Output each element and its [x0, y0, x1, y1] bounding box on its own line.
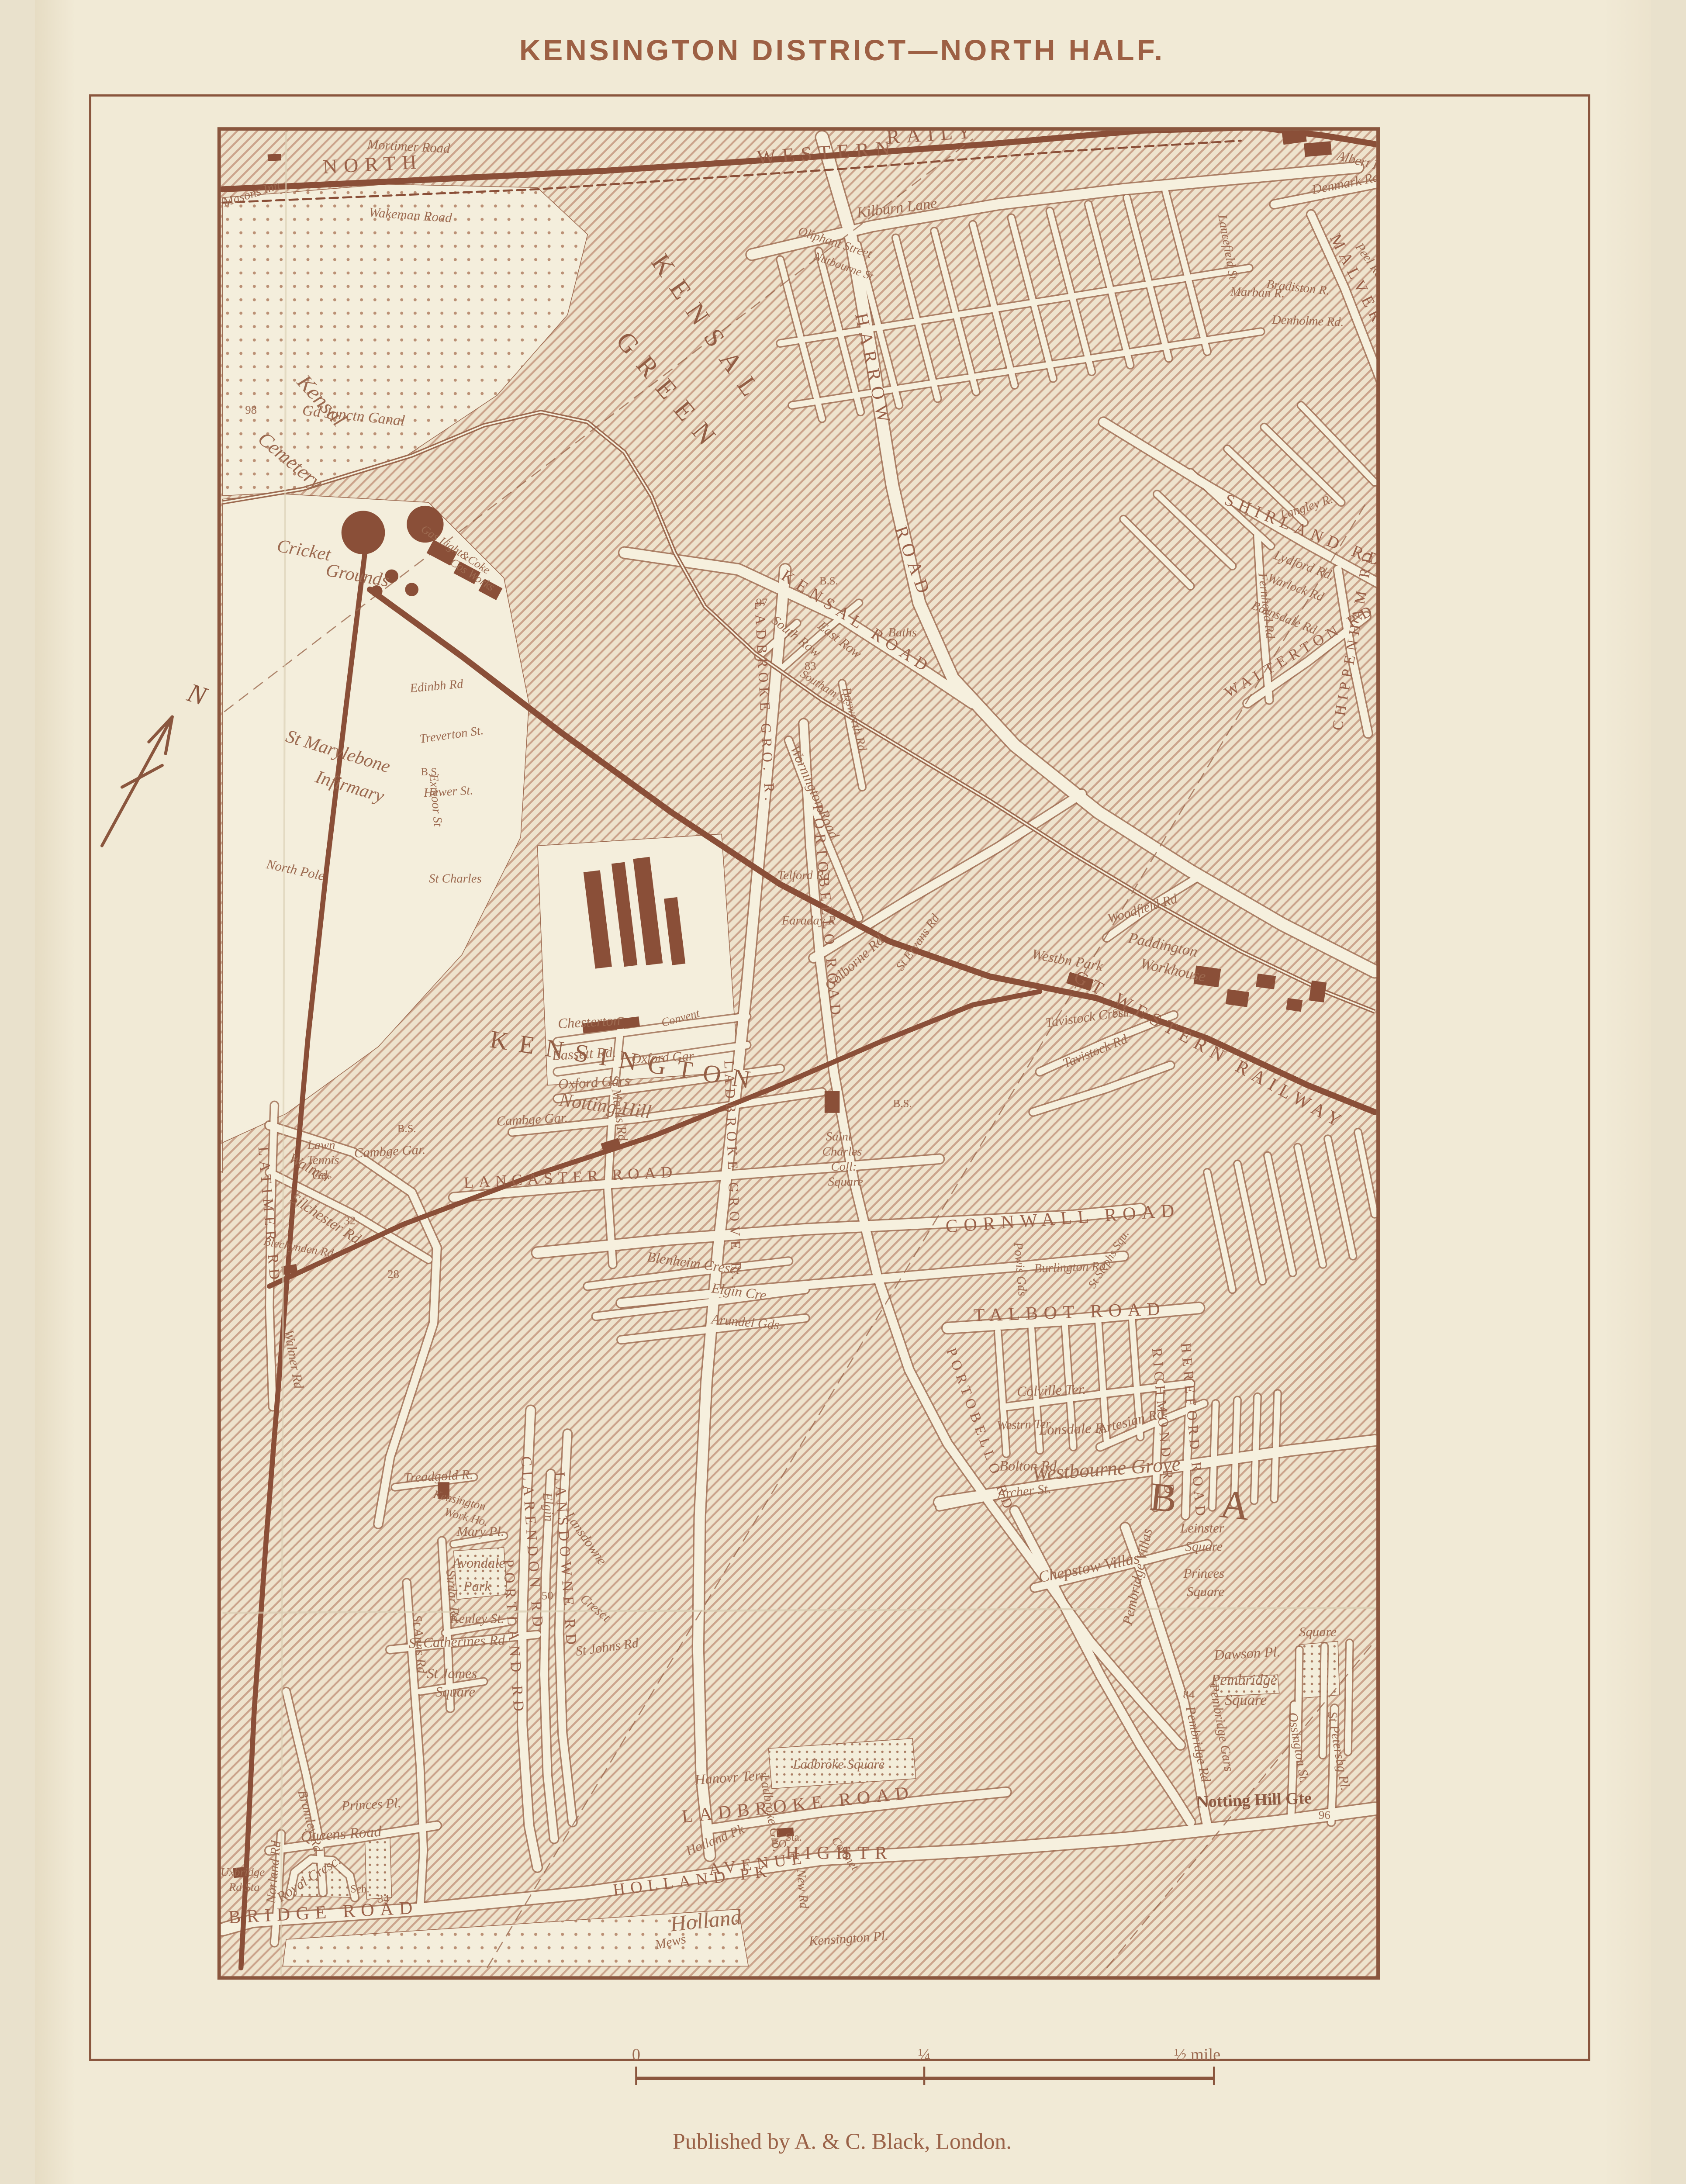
svg-text:Elgin: Elgin	[540, 1492, 557, 1522]
svg-text:97: 97	[756, 596, 768, 609]
svg-text:84: 84	[1183, 1688, 1195, 1701]
svg-text:Marban R.: Marban R.	[1230, 284, 1285, 300]
svg-text:B.S.: B.S.	[421, 766, 439, 778]
svg-text:Westrn Ter.: Westrn Ter.	[997, 1417, 1053, 1432]
svg-text:Square: Square	[1187, 1584, 1224, 1599]
svg-text:32: 32	[344, 1214, 356, 1227]
svg-text:St James: St James	[427, 1666, 477, 1682]
svg-text:Charles: Charles	[822, 1145, 862, 1159]
map-content: NORTHWESTERNRAILYKENSALGREENKensalCemete…	[190, 120, 1416, 1976]
svg-text:Bolton Rd: Bolton Rd	[999, 1458, 1057, 1474]
svg-text:28: 28	[387, 1267, 399, 1280]
svg-text:0: 0	[632, 2046, 640, 2064]
svg-text:Square: Square	[828, 1175, 864, 1189]
svg-text:Bassett Rd.: Bassett Rd.	[552, 1044, 616, 1064]
map-sheet: KENSINGTON DISTRICT—NORTH HALF. NORTHWES…	[35, 0, 1651, 2184]
svg-text:Square: Square	[435, 1684, 475, 1700]
svg-text:Square: Square	[1185, 1539, 1223, 1554]
svg-text:Denholme Rd.: Denholme Rd.	[1271, 313, 1344, 329]
svg-text:Uxbridge: Uxbridge	[221, 1865, 265, 1878]
svg-text:Square: Square	[1299, 1624, 1337, 1639]
svg-text:¼: ¼	[918, 2046, 931, 2064]
svg-text:Chesterton: Chesterton	[557, 1013, 621, 1032]
svg-text:B.S.: B.S.	[819, 575, 838, 587]
svg-text:½ mile: ½ mile	[1174, 2046, 1220, 2064]
svg-text:Rd Sta: Rd Sta	[228, 1880, 260, 1894]
svg-text:B.S.: B.S.	[397, 1123, 416, 1135]
compass-n-label: N	[183, 677, 211, 712]
svg-text:Princes: Princes	[1183, 1566, 1224, 1581]
svg-text:Tennis: Tennis	[307, 1153, 339, 1167]
svg-text:83: 83	[805, 660, 816, 673]
svg-text:Avondale: Avondale	[451, 1555, 505, 1571]
map-svg: KENSINGTON DISTRICT—NORTH HALF. NORTHWES…	[35, 0, 1651, 2184]
svg-text:Square: Square	[1225, 1692, 1267, 1708]
svg-text:50: 50	[542, 1589, 553, 1602]
svg-text:Coll:: Coll:	[831, 1160, 857, 1174]
svg-text:Baths: Baths	[888, 625, 917, 639]
svg-text:Sch.: Sch.	[1112, 1007, 1132, 1019]
compass-north-arrow: N	[102, 677, 211, 846]
page-title: KENSINGTON DISTRICT—NORTH HALF.	[519, 34, 1165, 67]
svg-text:Colville Ter.: Colville Ter.	[1016, 1382, 1086, 1400]
svg-text:Lawn: Lawn	[307, 1138, 335, 1152]
svg-text:96: 96	[1319, 1808, 1330, 1821]
svg-text:Park: Park	[463, 1579, 491, 1594]
svg-text:Saint: Saint	[826, 1130, 852, 1144]
svg-text:Princes Pl.: Princes Pl.	[341, 1795, 401, 1813]
svg-text:Gd.: Gd.	[312, 1168, 330, 1182]
svg-text:Sch.: Sch.	[350, 1883, 370, 1895]
svg-text:St Charles: St Charles	[429, 872, 482, 886]
svg-text:Ladbroke Square: Ladbroke Square	[793, 1757, 885, 1772]
svg-text:34: 34	[377, 1892, 389, 1905]
svg-text:B.S.: B.S.	[893, 1098, 912, 1109]
svg-text:98: 98	[245, 403, 257, 416]
svg-text:Burlington Rd.: Burlington Rd.	[1034, 1259, 1109, 1275]
publisher-credit: Published by A. & C. Black, London.	[673, 2129, 1012, 2154]
svg-text:Sta.: Sta.	[785, 1832, 802, 1843]
scale-bar: 0¼½ mile	[632, 2046, 1220, 2085]
